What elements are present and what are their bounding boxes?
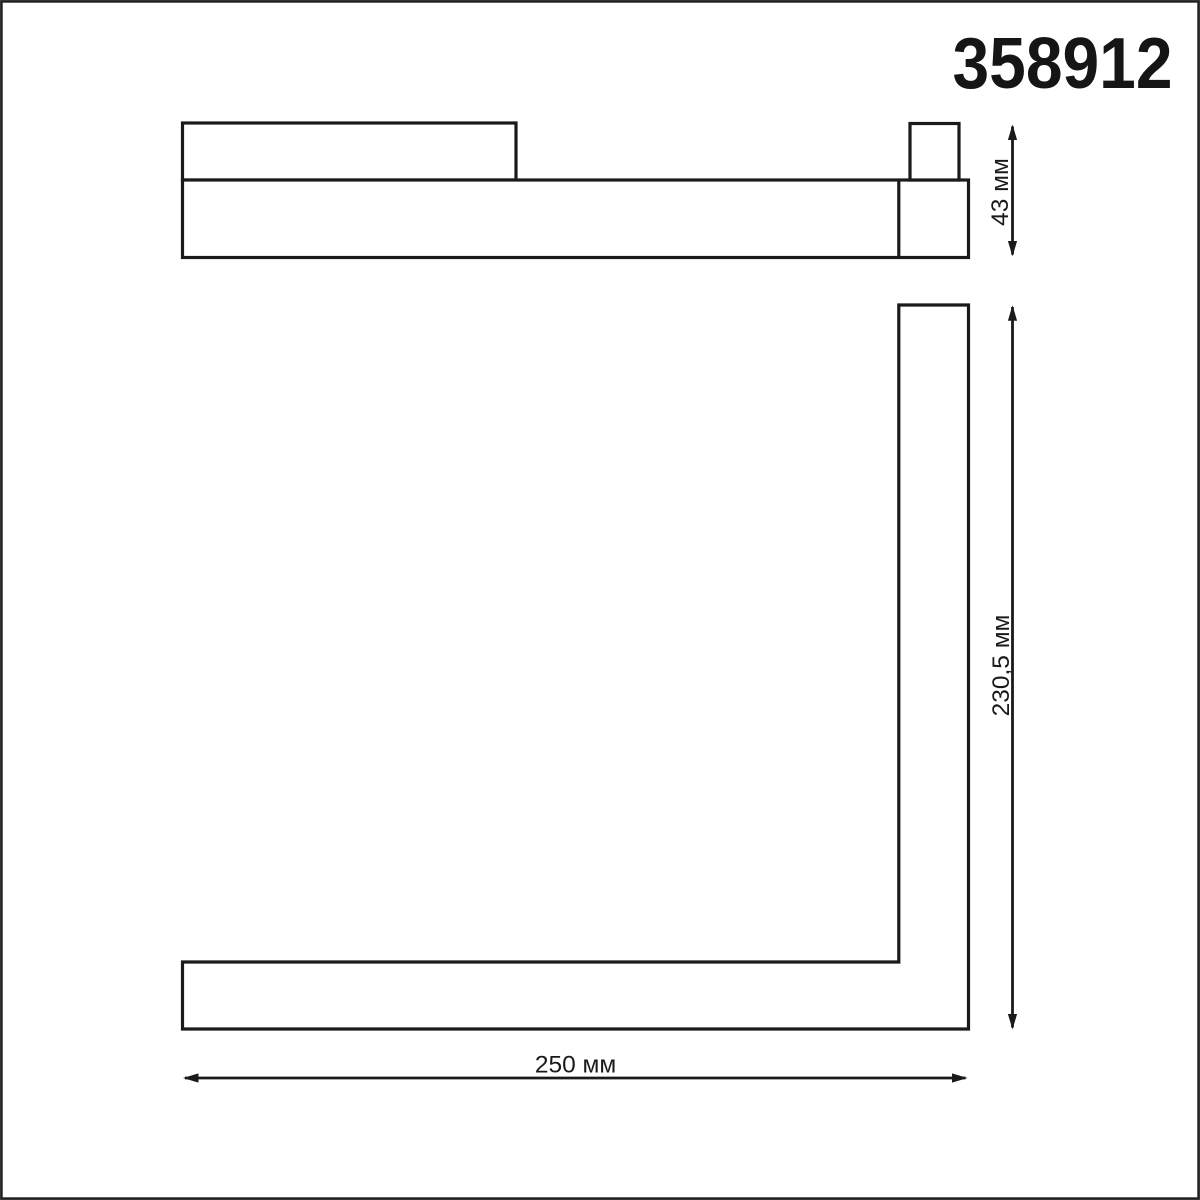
svg-text:230,5 мм: 230,5 мм xyxy=(988,615,1015,717)
svg-text:250 мм: 250 мм xyxy=(535,1052,616,1079)
svg-text:43 мм: 43 мм xyxy=(987,158,1014,226)
svg-text:358912: 358912 xyxy=(953,23,1173,104)
